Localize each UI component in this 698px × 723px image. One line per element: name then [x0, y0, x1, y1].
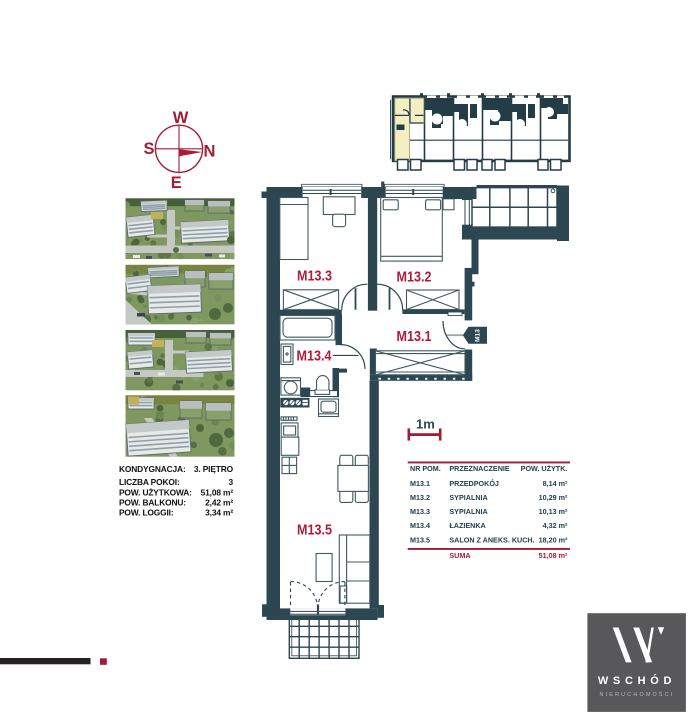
svg-text:M13.1: M13.1: [410, 479, 430, 488]
svg-text:M13.3: M13.3: [297, 269, 332, 285]
svg-text:M13.5: M13.5: [410, 536, 430, 545]
svg-text:POW. LOGGII:: POW. LOGGII:: [119, 508, 174, 518]
svg-text:SALON Z ANEKS. KUCH.: SALON Z ANEKS. KUCH.: [449, 536, 534, 545]
svg-text:SUMA: SUMA: [449, 551, 470, 560]
svg-text:POW. BALKONU:: POW. BALKONU:: [119, 498, 186, 508]
svg-text:S: S: [143, 140, 154, 158]
svg-text:NR POM.: NR POM.: [410, 464, 441, 473]
svg-text:KONDYGNACJA:: KONDYGNACJA:: [119, 464, 186, 474]
svg-text:SYPIALNIA: SYPIALNIA: [449, 507, 487, 516]
svg-text:51,08 m²: 51,08 m²: [539, 551, 568, 560]
svg-text:2,42 m²: 2,42 m²: [205, 498, 233, 508]
svg-text:M13: M13: [475, 329, 482, 342]
svg-text:M13.4: M13.4: [297, 349, 332, 365]
svg-text:WSCHÓD: WSCHÓD: [598, 674, 676, 687]
svg-text:M13.3: M13.3: [410, 507, 430, 516]
svg-text:3. PIĘTRO: 3. PIĘTRO: [194, 464, 234, 474]
svg-text:LICZBA POKOI:: LICZBA POKOI:: [119, 477, 180, 487]
svg-text:18,20 m²: 18,20 m²: [539, 536, 568, 545]
svg-text:3: 3: [228, 477, 233, 487]
svg-text:SYPIALNIA: SYPIALNIA: [449, 493, 487, 502]
svg-text:10,29 m²: 10,29 m²: [539, 493, 568, 502]
svg-text:8,14 m²: 8,14 m²: [543, 479, 568, 488]
svg-text:10,13 m²: 10,13 m²: [539, 507, 568, 516]
svg-text:ŁAZIENKA: ŁAZIENKA: [449, 521, 485, 530]
svg-text:W: W: [173, 109, 189, 127]
svg-text:1m: 1m: [416, 417, 435, 432]
svg-text:4,32 m²: 4,32 m²: [543, 521, 568, 530]
svg-text:PRZEZNACZENIE: PRZEZNACZENIE: [449, 464, 510, 473]
svg-text:M13.4: M13.4: [410, 521, 430, 530]
svg-text:N: N: [204, 143, 216, 161]
svg-text:M13.1: M13.1: [397, 329, 432, 345]
svg-text:M13.2: M13.2: [410, 493, 430, 502]
svg-text:POW. UŻYTKOWA:: POW. UŻYTKOWA:: [119, 488, 192, 498]
svg-text:3,34 m²: 3,34 m²: [205, 508, 233, 518]
svg-text:E: E: [171, 174, 182, 192]
svg-text:M13.5: M13.5: [297, 523, 332, 539]
svg-text:M13.2: M13.2: [397, 270, 432, 286]
svg-text:51,08 m²: 51,08 m²: [201, 488, 234, 498]
svg-text:POW. UŻYTK.: POW. UŻYTK.: [521, 464, 568, 473]
svg-text:NIERUCHOMOŚCI: NIERUCHOMOŚCI: [599, 690, 674, 698]
svg-text:PRZEDPOKÓJ: PRZEDPOKÓJ: [449, 479, 499, 488]
